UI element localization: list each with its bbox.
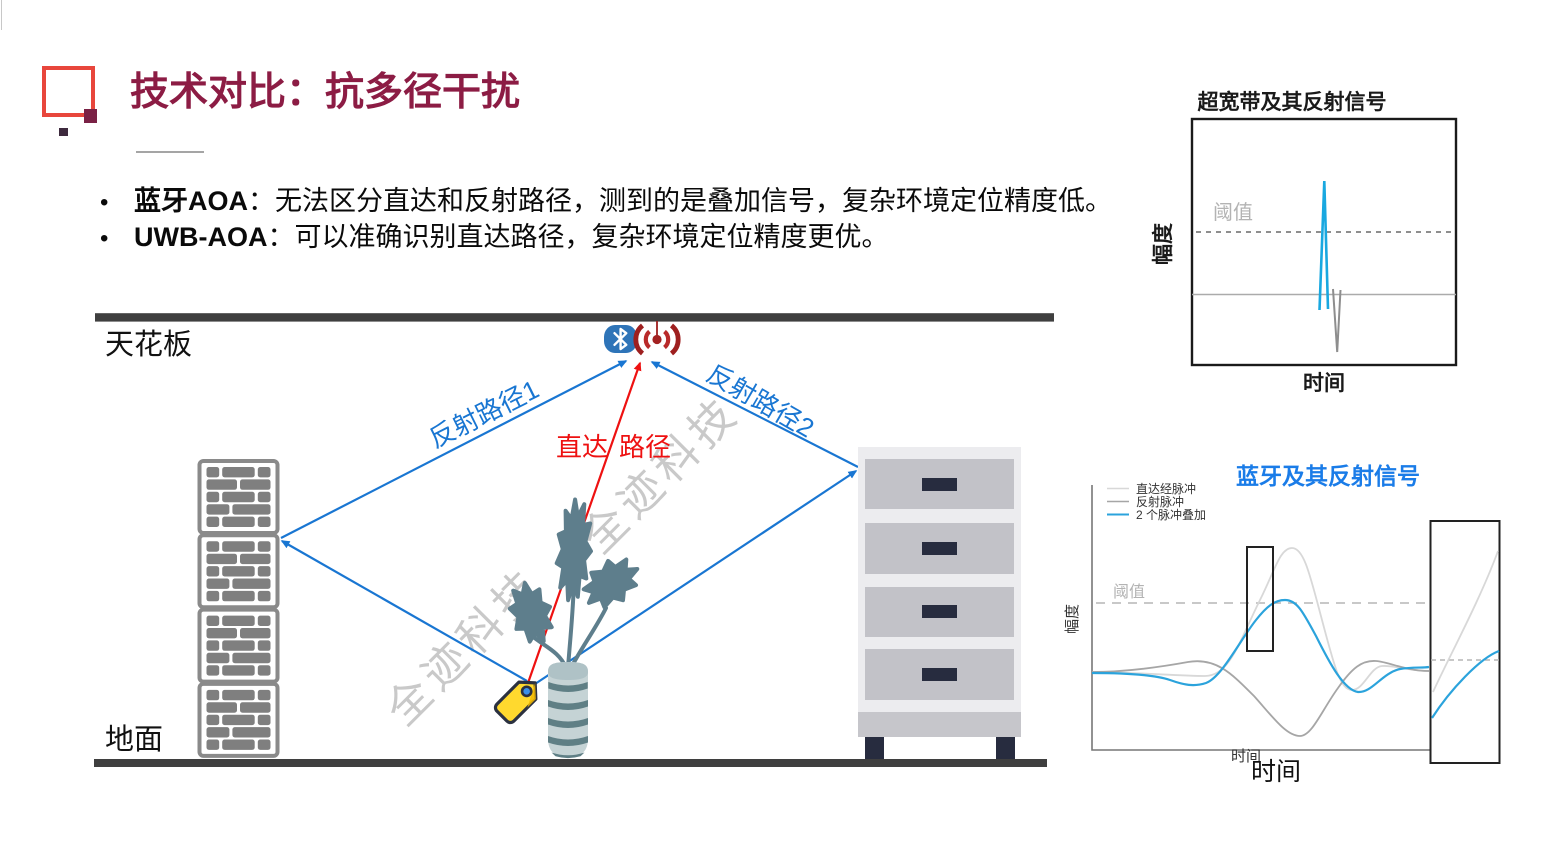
svg-text:幅度: 幅度 (1064, 604, 1081, 634)
svg-text:超宽带及其反射信号: 超宽带及其反射信号 (1198, 90, 1387, 114)
svg-text:全迹科技: 全迹科技 (573, 387, 749, 563)
svg-text:蓝牙及其反射信号: 蓝牙及其反射信号 (1236, 463, 1420, 489)
svg-text:阈值: 阈值 (1213, 201, 1253, 224)
svg-text:反射脉冲: 反射脉冲 (1136, 494, 1184, 509)
svg-text:2 个脉冲叠加: 2 个脉冲叠加 (1136, 507, 1206, 522)
svg-text:阈值: 阈值 (1113, 583, 1145, 601)
svg-text:直达经脉冲: 直达经脉冲 (1136, 481, 1196, 496)
svg-text:幅度: 幅度 (1151, 223, 1175, 265)
svg-text:时间: 时间 (1303, 372, 1345, 395)
